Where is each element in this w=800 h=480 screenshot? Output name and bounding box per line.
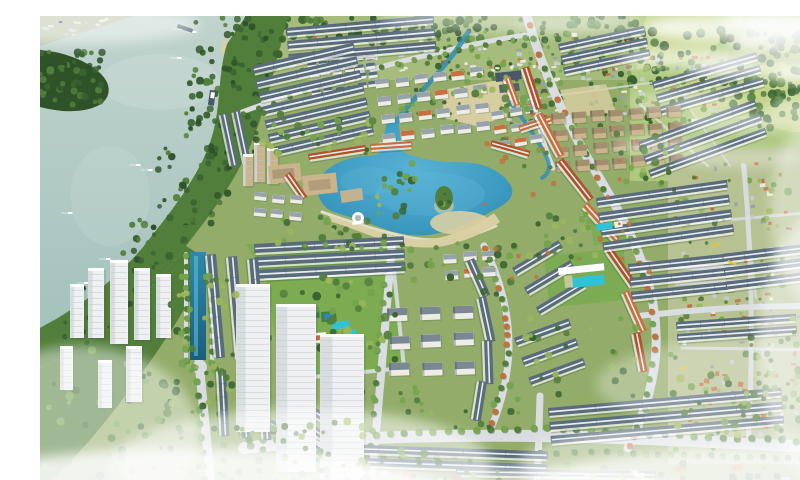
tower-floor-line — [255, 148, 264, 149]
tower-floor-line — [277, 328, 315, 329]
tree — [739, 312, 742, 315]
tree — [692, 176, 696, 180]
tree — [516, 254, 521, 259]
tree — [502, 84, 509, 91]
tree — [448, 61, 451, 64]
small-house — [687, 304, 692, 308]
tree — [279, 36, 285, 42]
tower-floor-line — [321, 382, 363, 383]
tree — [191, 73, 196, 78]
tree — [92, 66, 99, 73]
tree — [206, 153, 213, 160]
tree — [392, 356, 398, 362]
tower-floor-line — [277, 394, 315, 395]
tower-floor-line — [111, 302, 127, 303]
small-house — [751, 196, 755, 201]
tree — [268, 143, 274, 149]
tree — [651, 158, 659, 166]
tree — [332, 140, 337, 145]
tree — [405, 409, 411, 415]
tree — [173, 194, 180, 201]
tower-floor-line — [321, 394, 363, 395]
tree — [53, 69, 60, 76]
tree — [455, 241, 460, 246]
tree — [477, 73, 483, 79]
tree — [788, 84, 796, 92]
small-house — [724, 296, 729, 300]
tree — [573, 229, 577, 233]
building-roof — [453, 306, 473, 314]
tree — [136, 237, 140, 241]
street-tree — [381, 281, 387, 287]
tree — [528, 62, 532, 66]
tree — [241, 40, 249, 48]
tree — [368, 345, 373, 350]
tree — [522, 164, 527, 169]
small-house — [533, 65, 536, 68]
tree — [225, 278, 229, 282]
tree — [79, 68, 87, 76]
tower-floor-line — [135, 334, 149, 335]
tree — [236, 85, 242, 91]
tree — [369, 117, 377, 125]
tree — [672, 188, 677, 193]
boat — [177, 57, 182, 59]
tree — [336, 294, 341, 299]
tree — [155, 264, 162, 271]
tower-floor-line — [135, 328, 149, 329]
tree — [280, 290, 288, 298]
tree — [184, 133, 189, 138]
tower-floor-line — [127, 352, 141, 353]
tree — [303, 244, 307, 248]
tree — [437, 55, 442, 60]
tree — [349, 280, 353, 284]
tree — [194, 218, 200, 224]
tree — [62, 334, 67, 339]
building-roof — [422, 362, 442, 370]
tree — [231, 80, 236, 85]
tree — [528, 333, 533, 338]
tree — [500, 261, 507, 268]
tree — [761, 217, 765, 221]
tower-floor-line — [135, 286, 149, 287]
cloud — [675, 149, 800, 167]
tower-floor-line — [277, 382, 315, 383]
tree — [407, 262, 414, 269]
tree — [506, 382, 513, 389]
street-tree — [536, 52, 542, 58]
tree — [506, 287, 510, 291]
tower-floor-line — [89, 322, 103, 323]
tree — [503, 75, 508, 80]
tower-top — [243, 154, 253, 157]
tree — [274, 42, 281, 49]
tower-top — [236, 284, 270, 287]
tree — [487, 57, 491, 61]
tree — [305, 129, 310, 134]
tree — [181, 339, 187, 345]
tower-side — [236, 284, 246, 432]
tree — [481, 288, 488, 295]
small-house — [517, 49, 522, 51]
street-tree — [427, 54, 432, 59]
tower-floor-line — [71, 302, 83, 303]
tree — [333, 279, 340, 286]
tree — [131, 248, 137, 254]
tree — [213, 277, 219, 283]
tree — [234, 99, 238, 103]
tree — [230, 32, 234, 36]
tree — [79, 51, 85, 57]
tree — [182, 225, 189, 232]
tree — [542, 104, 548, 110]
tree — [278, 129, 284, 135]
tree — [613, 131, 620, 138]
tree — [223, 375, 229, 381]
cargo-ship-deck — [210, 92, 215, 98]
tree — [317, 16, 324, 23]
tree — [629, 165, 634, 170]
tree — [536, 85, 540, 89]
tree — [224, 190, 231, 197]
tree — [151, 251, 156, 256]
street-tree — [523, 35, 528, 40]
tree — [208, 79, 214, 85]
tower-floor-line — [277, 370, 315, 371]
tree — [238, 27, 243, 32]
tree — [379, 247, 384, 252]
tree — [419, 88, 422, 91]
tower-floor-line — [237, 338, 269, 339]
boat — [68, 212, 73, 214]
tree — [618, 222, 621, 225]
tree — [443, 46, 447, 50]
tree — [87, 63, 92, 68]
street-tree — [652, 334, 658, 340]
boat — [192, 31, 197, 33]
small-house — [404, 67, 408, 70]
tower-side — [70, 284, 74, 338]
aerial-masterplan-render — [40, 16, 800, 480]
lake-pavilion-roof — [355, 215, 361, 221]
tree — [325, 145, 332, 152]
tree — [491, 76, 496, 81]
tower-floor-line — [244, 178, 252, 179]
tree — [228, 381, 235, 388]
boat — [106, 258, 111, 260]
street-tree — [256, 106, 261, 111]
tree — [546, 251, 550, 255]
tree — [624, 105, 627, 108]
tree — [203, 180, 210, 187]
tree — [156, 247, 161, 252]
tree — [141, 221, 148, 228]
tree — [259, 139, 267, 147]
street-tree — [184, 315, 190, 321]
tree — [222, 176, 228, 182]
tower-floor-line — [321, 388, 363, 389]
lake-beach-se — [430, 211, 490, 235]
tree — [316, 142, 320, 146]
street-tree — [492, 409, 498, 415]
street-tree — [542, 66, 548, 72]
street-tree — [379, 64, 384, 69]
tower-floor-line — [277, 406, 315, 407]
lake-pavilion-roof — [355, 215, 361, 221]
tree — [304, 16, 311, 23]
boat-wake — [170, 58, 177, 59]
tree — [419, 401, 424, 406]
tree — [189, 368, 194, 373]
street-tree — [502, 306, 508, 312]
tree — [206, 161, 212, 167]
tower-floor-line — [135, 298, 149, 299]
tree — [201, 413, 205, 417]
street-tree — [600, 186, 606, 192]
tree — [652, 68, 656, 72]
highrise — [70, 284, 86, 340]
tree — [499, 158, 505, 164]
tree — [458, 102, 461, 105]
tower-floor-line — [71, 308, 83, 309]
tree — [376, 211, 380, 215]
tree — [336, 125, 342, 131]
tower-floor-line — [321, 346, 363, 347]
tree — [493, 246, 498, 251]
tree — [469, 36, 475, 42]
tree — [543, 39, 547, 43]
tower-floor-line — [111, 326, 127, 327]
tree — [413, 389, 419, 395]
tree — [221, 90, 228, 97]
tree — [447, 274, 454, 281]
tower-floor-line — [157, 298, 170, 299]
tree — [44, 84, 50, 90]
tree — [40, 92, 46, 98]
tower-floor-line — [237, 344, 269, 345]
tower-top — [110, 260, 128, 263]
tree — [221, 102, 226, 107]
tree — [230, 69, 236, 75]
tree — [541, 147, 545, 151]
tan-tower — [243, 154, 255, 188]
building-grid — [387, 305, 476, 378]
tree — [97, 82, 104, 89]
tower-floor-line — [237, 350, 269, 351]
tree — [237, 62, 241, 66]
boat-wake — [61, 213, 68, 214]
tower-floor-line — [89, 310, 103, 311]
tree — [213, 152, 218, 157]
tree — [610, 349, 615, 354]
highrise — [134, 268, 152, 342]
tree — [317, 121, 324, 128]
tree — [310, 134, 317, 141]
tree — [187, 80, 193, 86]
small-house — [464, 62, 468, 65]
tree — [250, 120, 257, 127]
tree — [494, 291, 499, 296]
tree — [487, 60, 493, 66]
tree — [520, 95, 528, 103]
tree — [383, 331, 392, 340]
tower-floor-line — [321, 400, 363, 401]
tree — [477, 273, 484, 280]
tree — [442, 100, 446, 104]
tower-floor-line — [321, 364, 363, 365]
tower-top — [70, 284, 84, 287]
tree — [530, 192, 535, 197]
tree — [212, 118, 218, 124]
street-tree — [498, 385, 504, 391]
arc-row — [480, 340, 493, 384]
boat — [84, 282, 89, 284]
street-tree — [442, 51, 447, 56]
street-tree — [183, 285, 189, 291]
tower-floor-line — [237, 320, 269, 321]
tree — [407, 188, 412, 193]
tree — [546, 213, 553, 220]
cloud — [510, 16, 690, 36]
tree — [216, 298, 224, 306]
street-tree — [483, 42, 488, 47]
lake-beach-se — [430, 211, 490, 235]
tree — [98, 49, 105, 56]
tree — [629, 65, 633, 69]
tree — [343, 227, 349, 233]
tower-floor-line — [89, 280, 103, 281]
tree — [70, 102, 76, 108]
tree — [555, 391, 561, 397]
tree — [360, 131, 368, 139]
canal-reflection — [194, 256, 198, 356]
small-house — [634, 86, 638, 89]
tree — [91, 78, 96, 83]
tree — [184, 111, 188, 115]
street-tree — [456, 47, 461, 52]
tree — [349, 16, 354, 21]
tree — [207, 381, 214, 388]
tree — [487, 424, 492, 429]
tree — [569, 254, 574, 259]
tree — [618, 177, 622, 181]
tree — [420, 409, 424, 413]
tree — [586, 219, 592, 225]
tree — [365, 148, 369, 152]
tree — [559, 245, 563, 249]
tree — [400, 398, 406, 404]
tower-floor-line — [135, 316, 149, 317]
tree — [179, 273, 186, 280]
tree — [397, 179, 402, 184]
tower-floor-line — [237, 290, 269, 291]
tree — [249, 23, 256, 30]
tree — [233, 56, 237, 60]
tower-floor-line — [71, 290, 83, 291]
tower-floor-line — [268, 160, 277, 161]
tree — [564, 344, 569, 349]
tree — [166, 150, 171, 155]
se-pool-deck — [564, 275, 573, 288]
small-house — [520, 59, 526, 62]
tree — [761, 91, 767, 97]
tower-floor-line — [237, 380, 269, 381]
highrise — [88, 268, 106, 340]
tree — [208, 46, 214, 52]
tree — [541, 93, 548, 100]
tree — [207, 105, 214, 112]
tree — [589, 82, 594, 87]
tree — [281, 117, 286, 122]
tree — [157, 156, 161, 160]
tree — [632, 324, 639, 331]
tower-floor-line — [237, 332, 269, 333]
tree — [516, 411, 520, 415]
tree — [449, 69, 452, 72]
tower-floor-line — [255, 172, 264, 173]
tree — [212, 370, 216, 374]
tree — [146, 240, 153, 247]
tower-floor-line — [111, 284, 127, 285]
tree — [428, 261, 435, 268]
tower-floor-line — [277, 388, 315, 389]
tree — [400, 242, 405, 247]
tree — [220, 284, 225, 289]
tree — [277, 111, 284, 118]
tree — [429, 411, 433, 415]
tree — [407, 247, 414, 254]
tree — [463, 243, 469, 249]
cloud — [510, 16, 690, 36]
tree — [328, 316, 337, 325]
tree — [515, 397, 521, 403]
building-roof — [482, 251, 495, 257]
tree — [547, 77, 552, 82]
street-tree — [241, 111, 246, 116]
tower-floor-line — [135, 304, 149, 305]
tree — [500, 61, 506, 67]
tree — [256, 50, 263, 57]
tree — [398, 391, 402, 395]
tree — [188, 119, 195, 126]
tree — [89, 50, 94, 55]
tree — [336, 286, 343, 293]
cargo-ship-deck — [210, 92, 215, 98]
small-house — [714, 166, 717, 171]
tree — [318, 134, 324, 140]
tree — [189, 345, 196, 352]
boat-wake — [77, 283, 84, 284]
tree — [359, 245, 364, 250]
tree — [181, 183, 187, 189]
tree — [319, 234, 327, 242]
tree — [211, 181, 218, 188]
tree — [454, 425, 458, 429]
tower-floor-line — [237, 398, 269, 399]
tree — [464, 409, 468, 413]
tower-floor-line — [321, 376, 363, 377]
tree — [218, 368, 226, 376]
small-house — [542, 83, 545, 85]
tower-floor-line — [111, 308, 127, 309]
tree — [544, 233, 549, 238]
tree — [510, 277, 514, 281]
tree — [579, 243, 583, 247]
tree — [300, 131, 305, 136]
tree — [334, 118, 341, 125]
tree — [192, 207, 198, 213]
